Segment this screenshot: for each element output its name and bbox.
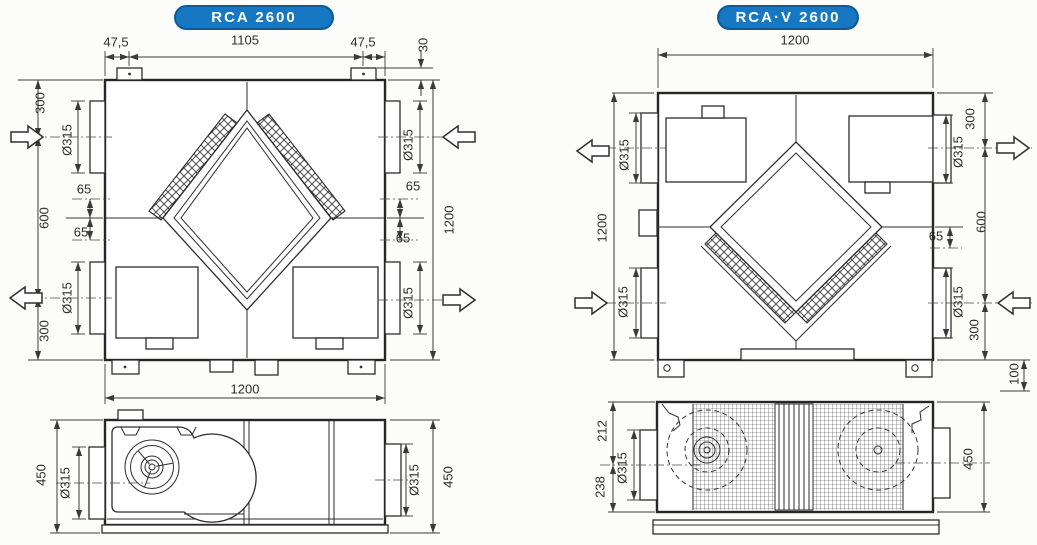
dim-label-depth-back: 238 [593,476,608,498]
dim-label-foot-height: 100 [1007,363,1022,385]
dim-label-duct-diameter: Ø315 [60,124,75,156]
dim-label-side-top: 300 [33,92,48,114]
rcav-foot-left [658,360,684,377]
airflow-arrow-out-bottom-right [443,289,475,311]
dim-label-duct-diameter: Ø315 [951,286,966,318]
rca-bottom-view [89,410,401,533]
airflow-arrow-out-bottom-left [10,287,42,309]
dim-label-offset-left: 47,5 [103,35,128,50]
dim-label-overall-height: 1200 [442,206,457,235]
drawing-linework: 47,5 1105 47,5 30 300 Ø315 65 600 65 Ø31… [0,0,1037,545]
dim-label-tab-height: 30 [416,38,431,52]
dim-label-duct-offset: 65 [929,229,943,244]
dim-label-duct-diameter: Ø315 [60,282,75,314]
dim-label-duct-offset: 65 [77,182,91,197]
dim-label-duct-diameter: Ø315 [401,129,416,161]
rca-fan-box-left [116,267,198,338]
dim-label-depth-front: 212 [595,420,610,442]
dim-label-duct-diameter: Ø315 [951,136,966,168]
airflow-arrow-in-bottom-left [575,292,607,314]
technical-drawing-sheet: 47,5 1105 47,5 30 300 Ø315 65 600 65 Ø31… [0,0,1037,545]
dim-label-duct-offset: 65 [406,179,420,194]
dim-label-duct-diameter: Ø315 [407,464,422,496]
rcav-small-stub-left [639,210,657,236]
dim-label-side-bottom: 300 [37,320,52,342]
rcav-duct-stub-top-right [933,115,951,183]
dim-label-side-top: 300 [963,108,978,130]
rcav-front-view [639,93,951,377]
dim-label-depth: 450 [961,448,976,470]
rca-bottom-tab-2 [255,360,278,375]
rca-base-rail [102,525,388,533]
dim-label-duct-offset: 65 [74,225,88,240]
dim-label-top-width: 1105 [231,33,259,48]
dim-label-duct-diameter: Ø315 [58,467,73,499]
dim-label-duct-offset: 65 [396,231,410,246]
dim-label-side-bottom: 300 [967,319,982,341]
dim-label-offset-right: 47,5 [350,35,375,50]
model-badge-rca: RCA 2600 [174,5,334,30]
rca-fan-box-right [293,267,378,338]
dim-label-duct-diameter: Ø315 [615,452,630,484]
rca-duct-stub-bottom-right [385,262,400,334]
rcav-foot-right [906,360,932,377]
airflow-arrow-in-top-right [443,126,475,148]
dim-label-overall-height: 1200 [595,214,610,243]
dim-label-overall-width: 1200 [231,382,260,397]
dim-label-duct-diameter: Ø315 [616,286,631,318]
rcav-fan-box-left [666,118,746,182]
airflow-arrow-out-top-right [997,137,1029,159]
rcav-base-rail [653,520,939,534]
dim-label-depth: 450 [441,466,456,488]
airflow-arrow-in-bottom-right [998,292,1030,314]
model-badge-rcav: RCA·V 2600 [717,5,859,30]
dim-label-side-mid: 600 [974,211,989,233]
airflow-arrow-out-top-left [577,140,609,162]
dim-label-overall-width: 1200 [781,33,810,48]
rca-fan-scroll [112,427,256,522]
dim-label-side-mid: 600 [37,207,52,229]
rca-bottom-tab-1 [210,360,233,372]
dim-label-depth: 450 [34,464,49,486]
rcav-bottom-view [640,402,950,534]
rcav-drain-tray [741,349,854,360]
rcav-fan-box-right [849,116,933,182]
dim-label-duct-diameter: Ø315 [401,287,416,319]
dim-label-duct-diameter: Ø315 [617,139,632,171]
rca-front-view [90,68,400,375]
